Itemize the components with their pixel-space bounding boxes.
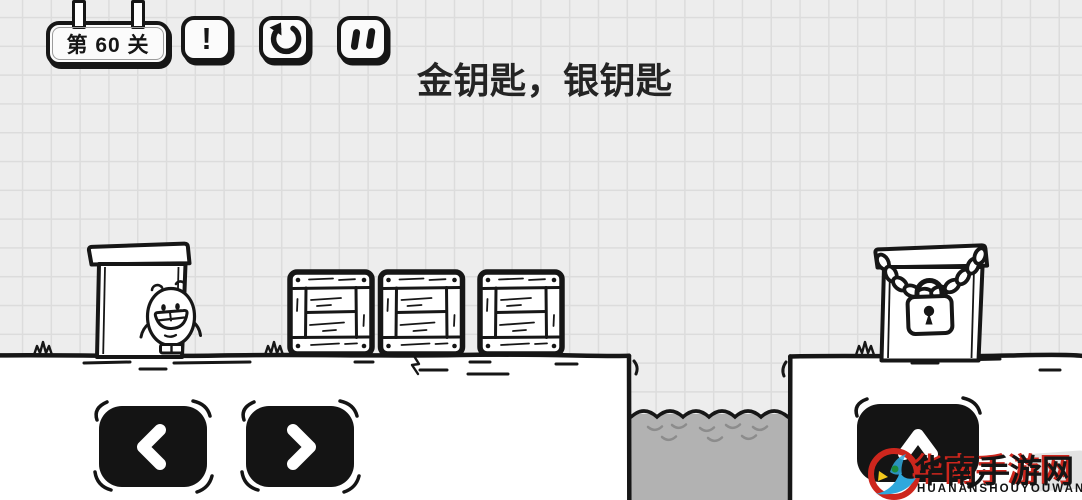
move-left-button[interactable] bbox=[99, 406, 207, 487]
eye-left bbox=[161, 304, 166, 311]
sign-post-left bbox=[72, 0, 86, 29]
wooden-crate-1[interactable] bbox=[290, 272, 372, 354]
level-sign: 第 60 关 bbox=[46, 21, 170, 66]
restart-icon bbox=[267, 22, 302, 57]
wooden-crate-2[interactable] bbox=[381, 272, 463, 354]
hint-button[interactable]: ! bbox=[181, 16, 232, 62]
chevron-up-icon bbox=[893, 421, 943, 465]
pause-icon bbox=[352, 29, 374, 50]
chain-locked-box[interactable] bbox=[874, 245, 987, 360]
jump-button[interactable] bbox=[857, 404, 979, 482]
move-right-button[interactable] bbox=[246, 406, 354, 487]
chevron-right-icon bbox=[278, 423, 322, 471]
exclamation-icon: ! bbox=[201, 23, 211, 54]
pause-button[interactable] bbox=[337, 16, 388, 62]
tooth-gap bbox=[170, 313, 171, 321]
level-label: 第 60 关 bbox=[66, 29, 149, 59]
restart-button[interactable] bbox=[259, 16, 310, 62]
wooden-crate-3[interactable] bbox=[480, 272, 562, 354]
eye-right bbox=[175, 303, 180, 310]
sign-post-right bbox=[131, 0, 145, 29]
chevron-left-icon bbox=[131, 423, 175, 471]
puzzle-title: 金钥匙，银钥匙 bbox=[417, 52, 673, 104]
water-pit bbox=[631, 411, 789, 500]
game-screen: 第 60 关 ! 金钥匙，银钥匙 bbox=[0, 0, 1082, 500]
